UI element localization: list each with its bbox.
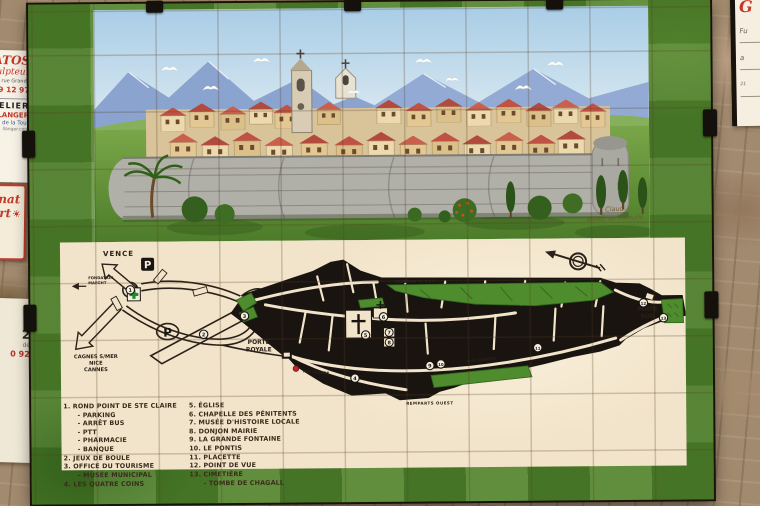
legend-item: 4. LES QUATRE COINS: [64, 479, 178, 489]
poster-atelier: ELIER: [0, 100, 29, 111]
label-remparts-ouest: REMPARTS OUEST: [406, 400, 453, 405]
orange-tree: [453, 198, 477, 222]
porte-royale-gate: [282, 347, 292, 359]
map-legend: 1. ROND POINT DE STE CLAIRE - PARKING - …: [63, 374, 344, 489]
round-tree: [563, 193, 583, 213]
legend-column-right: 5. ÉGLISE6. CHAPELLE DES PÉNITENTS7. MUS…: [189, 375, 301, 488]
sign-row-3: 21: [740, 70, 760, 97]
svg-text:6: 6: [382, 315, 386, 321]
round-tree: [439, 210, 451, 222]
mounting-clip: [704, 291, 718, 318]
round-tree: [528, 196, 552, 220]
photo-of-tile-mural: { "wall_signs": { "left_top": { "line1":…: [0, 0, 760, 506]
sign-g-letter: G: [739, 0, 760, 16]
sign-row-2: a: [740, 43, 760, 70]
mounting-clip: [146, 1, 163, 13]
mounting-clip: [344, 0, 361, 11]
signature-line1: Claud: [605, 205, 625, 214]
poster-phone: 39 12 97: [0, 84, 30, 95]
svg-text:2: 2: [202, 332, 206, 338]
flourish-icon: [13, 210, 20, 217]
legend-item: 7. MUSÉE D'HISTOIRE LOCALE: [189, 418, 300, 428]
painting-panel: Claud Atelier de Vallauris: [93, 6, 650, 242]
poster-bottom-line3: 0 92: [0, 348, 30, 360]
tile-mural: Claud Atelier de Vallauris: [28, 0, 714, 505]
compass-rose: [545, 250, 605, 271]
poster-artisanat-line1: anat: [0, 192, 20, 207]
poster-divider: [0, 97, 29, 99]
svg-text:5: 5: [364, 333, 368, 339]
svg-text:12: 12: [641, 301, 647, 306]
painting-svg: Claud Atelier de Vallauris: [93, 6, 650, 242]
poster-name: NE MOLLANGER: [0, 110, 29, 120]
legend-item: 1. ROND POINT DE STE CLAIRE: [63, 401, 177, 411]
sign-row-1: Fu: [739, 16, 760, 43]
svg-text:11: 11: [535, 346, 541, 351]
legend-item: - TOMBE DE CHAGALL: [189, 478, 300, 488]
svg-text:8: 8: [387, 340, 391, 346]
label-porte-sud-2: SUD: [641, 314, 655, 320]
legend-column-left: 1. ROND POINT DE STE CLAIRE - PARKING - …: [63, 376, 178, 489]
round-tree: [215, 204, 235, 224]
svg-text:7: 7: [387, 330, 391, 336]
svg-text:P: P: [144, 260, 151, 271]
label-cannes: CANNES: [84, 367, 108, 373]
parking-sign-1: P: [141, 258, 154, 272]
mounting-clip: [23, 305, 36, 332]
street-plates: [111, 269, 208, 311]
wall-poster-artisanat: anat rt: [0, 184, 27, 261]
label-porte-royale-2: ROYALE: [246, 346, 272, 353]
svg-text:3: 3: [243, 314, 247, 320]
svg-text:1: 1: [129, 288, 133, 294]
cagnes-arrow: [75, 302, 121, 349]
label-fondation-2: MAEGHT: [88, 280, 107, 285]
svg-text:13: 13: [661, 316, 667, 321]
svg-text:4: 4: [353, 376, 357, 382]
label-remparts-est: REMPARTS EST: [395, 278, 435, 283]
round-tree: [408, 208, 422, 222]
svg-text:9: 9: [428, 364, 432, 370]
parking-sign-2: P: [163, 326, 172, 340]
maeght-arrow: [73, 284, 86, 289]
poster-title: TRATOS: [0, 52, 30, 67]
label-nice: NICE: [89, 361, 103, 367]
wall-sign-top-right: G Fu a 21: [730, 0, 760, 126]
label-porte-royale-1: PORTE: [248, 339, 270, 346]
label-porte-sud-1: PORTE: [637, 307, 658, 313]
svg-text:10: 10: [438, 362, 444, 367]
svg-text:P: P: [163, 326, 172, 340]
label-vence: VENCE: [103, 250, 134, 258]
mounting-clip: [22, 131, 35, 158]
round-tree: [182, 196, 208, 222]
you-are-here-dot: [293, 366, 299, 372]
poster-artisanat-line2: rt: [0, 206, 20, 221]
mounting-clip: [703, 109, 717, 136]
mounting-clip: [546, 0, 563, 10]
label-cagnes: CAGNES S/MER: [74, 354, 118, 360]
poster-subtitle: Sculpteur: [0, 66, 30, 78]
